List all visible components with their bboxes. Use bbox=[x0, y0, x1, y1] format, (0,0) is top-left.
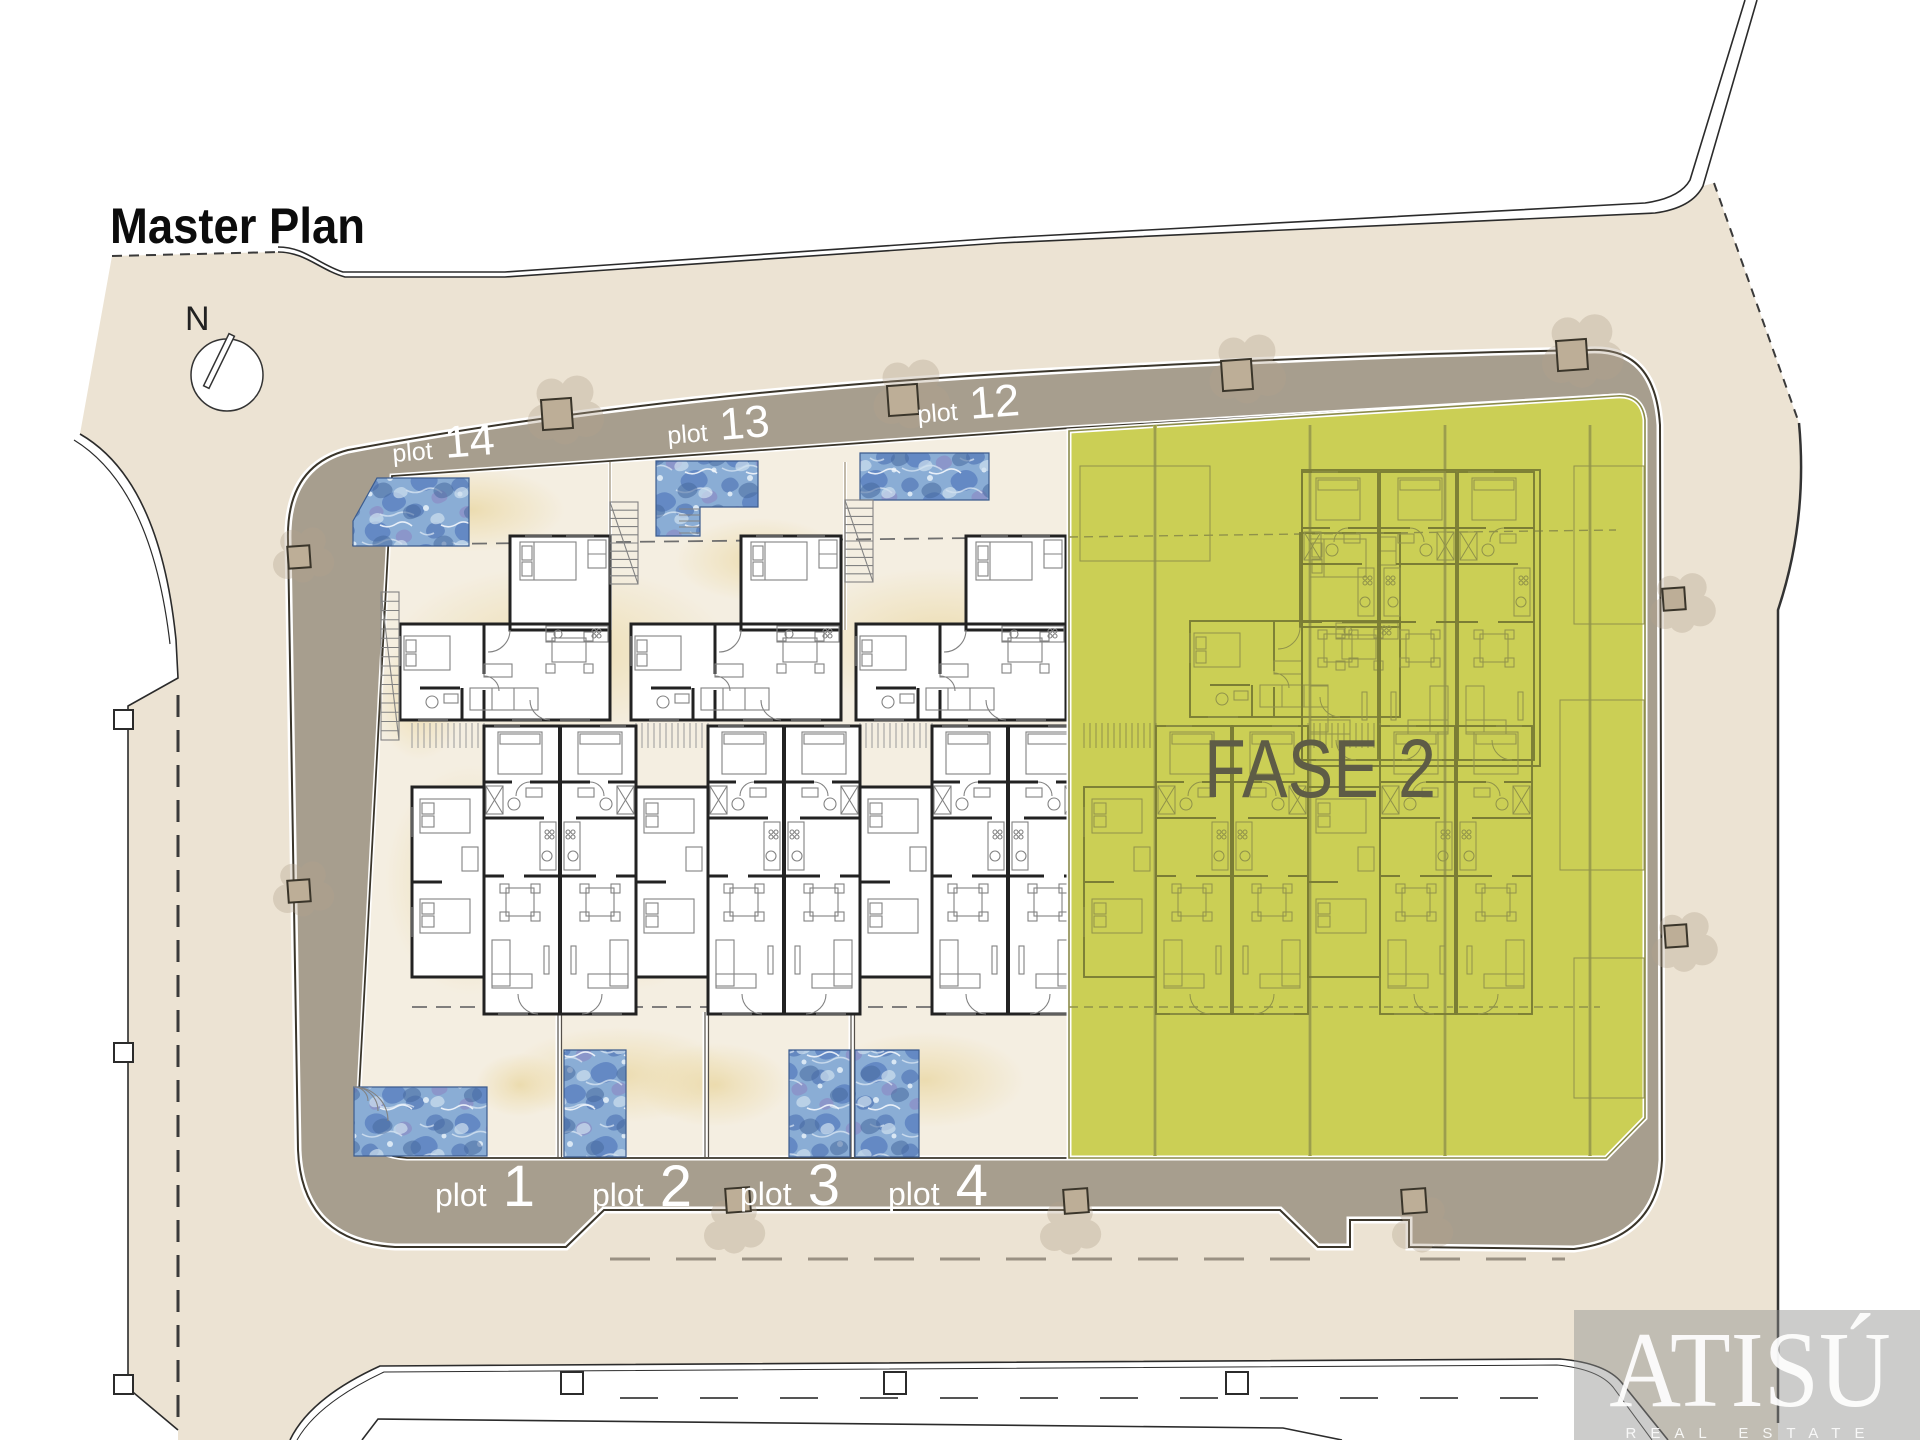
svg-text:FASE 2: FASE 2 bbox=[1204, 722, 1436, 815]
svg-text:Master Plan: Master Plan bbox=[110, 198, 365, 254]
svg-text:REAL ESTATE: REAL ESTATE bbox=[1626, 1425, 1879, 1440]
svg-text:ATISÚ: ATISÚ bbox=[1609, 1311, 1890, 1430]
svg-text:N: N bbox=[185, 300, 210, 338]
